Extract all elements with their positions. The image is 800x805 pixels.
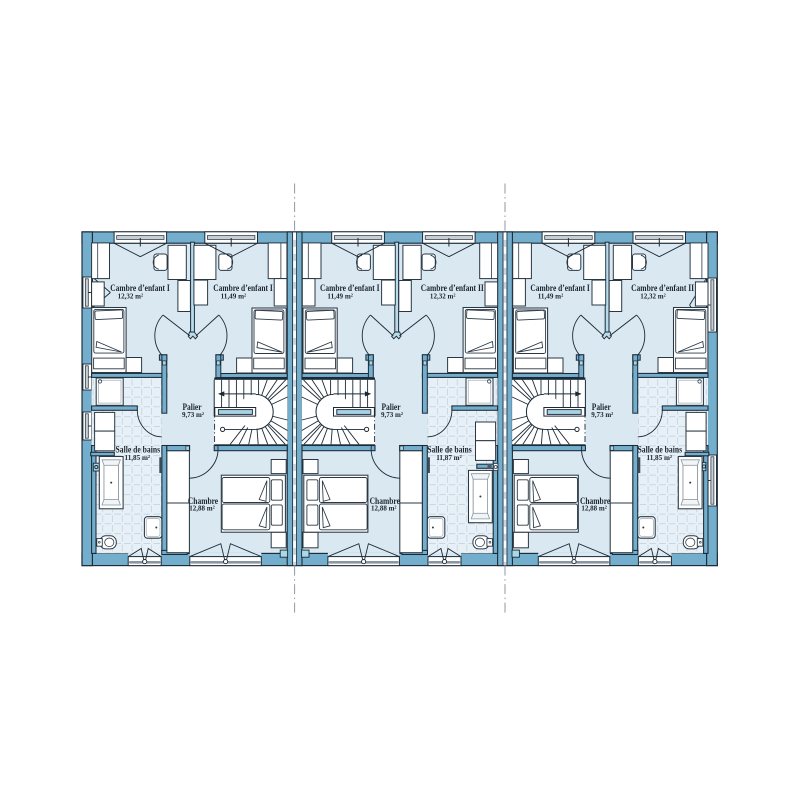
- svg-text:Cambre d’enfant I: Cambre d’enfant I: [213, 283, 273, 293]
- svg-text:Cambre d’enfant II: Cambre d’enfant II: [421, 283, 484, 293]
- svg-text:Palier: Palier: [382, 402, 401, 412]
- svg-text:Cambre d’enfant I: Cambre d’enfant I: [530, 283, 590, 293]
- svg-text:12,32 m²: 12,32 m²: [118, 293, 144, 300]
- svg-text:Salle de bains: Salle de bains: [427, 445, 472, 455]
- svg-text:12,88 m²: 12,88 m²: [189, 506, 215, 513]
- svg-text:11,85 m²: 11,85 m²: [647, 455, 673, 462]
- svg-text:11,87 m²: 11,87 m²: [436, 455, 462, 462]
- svg-text:11,85 m²: 11,85 m²: [125, 455, 151, 462]
- svg-text:Salle de bains: Salle de bains: [116, 445, 161, 455]
- svg-text:9,73 m²: 9,73 m²: [381, 412, 403, 419]
- svg-text:Cambre d’enfant I: Cambre d’enfant I: [110, 283, 170, 293]
- svg-text:12,88 m²: 12,88 m²: [371, 506, 397, 513]
- svg-text:12,88 m²: 12,88 m²: [581, 506, 607, 513]
- svg-text:Palier: Palier: [183, 402, 202, 412]
- svg-text:Salle de bains: Salle de bains: [638, 445, 683, 455]
- svg-text:Cambre d’enfant I: Cambre d’enfant I: [320, 283, 380, 293]
- svg-text:11,49 m²: 11,49 m²: [327, 293, 353, 300]
- svg-text:Palier: Palier: [592, 402, 611, 412]
- svg-text:11,49 m²: 11,49 m²: [221, 293, 247, 300]
- svg-text:11,49 m²: 11,49 m²: [538, 293, 564, 300]
- svg-text:Cambre d’enfant II: Cambre d’enfant II: [631, 283, 694, 293]
- svg-text:9,73 m²: 9,73 m²: [182, 412, 204, 419]
- svg-text:12,32 m²: 12,32 m²: [430, 293, 456, 300]
- svg-text:12,32 m²: 12,32 m²: [640, 293, 666, 300]
- svg-text:9,73 m²: 9,73 m²: [591, 412, 613, 419]
